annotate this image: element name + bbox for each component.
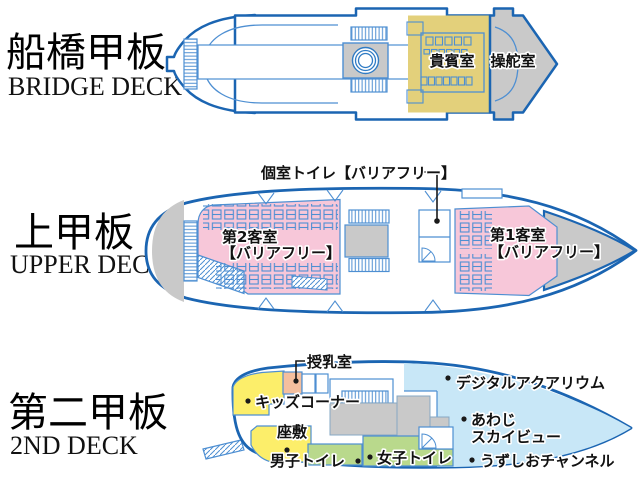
deck-plan-diagram: 船橋甲板 BRIDGE DECK — [0, 0, 640, 480]
funnel-icon — [343, 43, 388, 78]
gangway-icon — [203, 440, 244, 459]
hull-top-hatch — [462, 189, 502, 198]
womens-toilet-dot — [367, 454, 372, 459]
cabin2-seat-rows-top — [203, 204, 338, 230]
toilet-leader-dot — [434, 218, 440, 224]
upper-deck-title-jp: 上甲板 — [14, 210, 134, 255]
mens-toilet-label: 男子トイレ — [270, 452, 345, 470]
digital-aquarium-dot — [445, 375, 450, 380]
top-room-b — [316, 374, 328, 393]
cabin1-seat-rows-bottom — [458, 254, 492, 291]
bridge-deck-title-en: BRIDGE DECK — [8, 72, 182, 101]
kids-corner-label: キッズコーナー — [255, 393, 360, 411]
upper-deck-section: 上甲板 UPPER DECK — [10, 164, 636, 313]
awaji-skyview-dot — [461, 416, 466, 421]
mens-toilet-dot — [355, 458, 360, 463]
uzushio-channel-dot — [469, 457, 474, 462]
vip-room-label: 貴賓室 — [429, 52, 474, 70]
uzushio-channel-label: うずしおチャンネル — [480, 452, 615, 470]
digital-aquarium-label: デジタルアクアリウム — [456, 374, 605, 392]
cabin1-seat-rows-top — [458, 211, 492, 249]
cabin1-note-label: 【バリアフリー】 — [489, 243, 609, 261]
womens-toilet-label: 女子トイレ — [377, 449, 452, 467]
bridge-deck-title-jp: 船橋甲板 — [6, 30, 166, 75]
stairwell-icon — [419, 427, 453, 449]
wheelhouse-label: 操舵室 — [490, 52, 535, 70]
nursing-room-label: 授乳室 — [307, 353, 352, 371]
awaji-skyview-label-line1: あわじ — [471, 411, 516, 429]
awaji-skyview-label-line2: スカイビュー — [471, 428, 561, 446]
cabin2-note-label: 【バリアフリー】 — [221, 244, 341, 262]
stern-stairs-icon — [184, 39, 197, 89]
bridge-deck-section: 船橋甲板 BRIDGE DECK — [6, 9, 557, 120]
upper-stern-stairs-icon — [184, 221, 197, 281]
kids-corner-dot — [245, 398, 250, 403]
top-room-a — [302, 374, 315, 393]
second-deck-title-en: 2ND DECK — [10, 431, 138, 460]
accessible-toilet-room — [419, 210, 450, 262]
hull-bottom-ramp-icon — [292, 276, 327, 290]
tatami-label: 座敷 — [276, 423, 308, 441]
nursing-room — [283, 372, 302, 394]
second-deck-title-jp: 第二甲板 — [8, 390, 168, 435]
upper-deck-title-en: UPPER DECK — [10, 250, 168, 279]
cabin1-label: 第1客室 — [490, 226, 545, 244]
second-deck-section: 第二甲板 2ND DECK 授乳 — [8, 353, 631, 470]
casing-block — [345, 225, 388, 257]
accessible-toilet-label: 個室トイレ【バリアフリー】 — [260, 164, 456, 182]
nursing-leader-dot — [293, 378, 298, 383]
stern-deck-area — [152, 200, 184, 302]
